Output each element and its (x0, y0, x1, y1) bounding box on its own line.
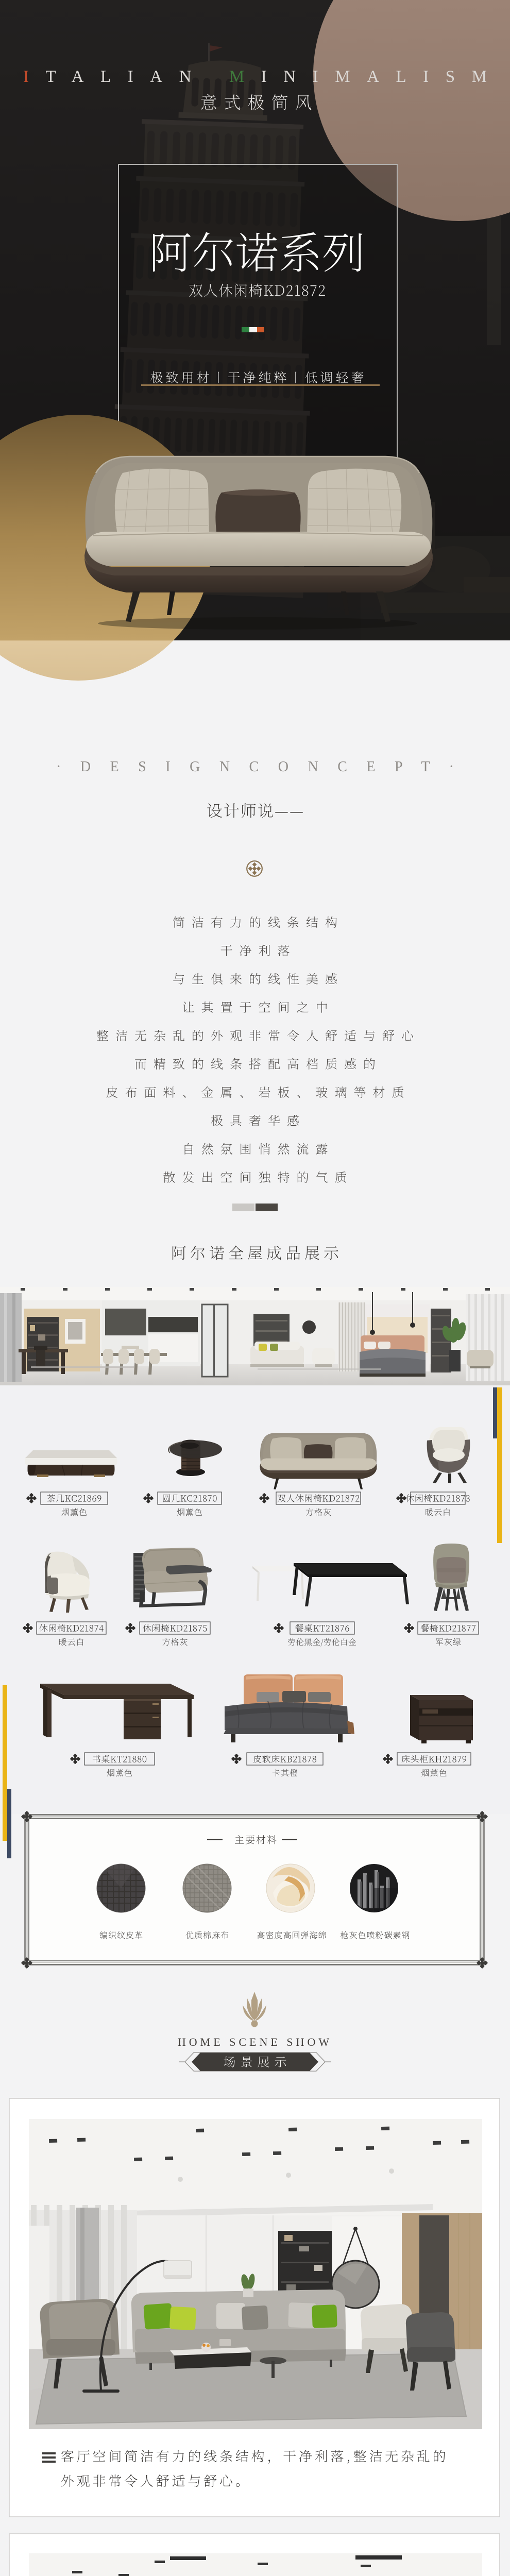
svg-text:· D E S I G N C O N C E P T: · D E S I G N C O N C E P T · (56, 759, 454, 775)
svg-text:HOME SCENE SHOW: HOME SCENE SHOW (178, 2036, 332, 2048)
